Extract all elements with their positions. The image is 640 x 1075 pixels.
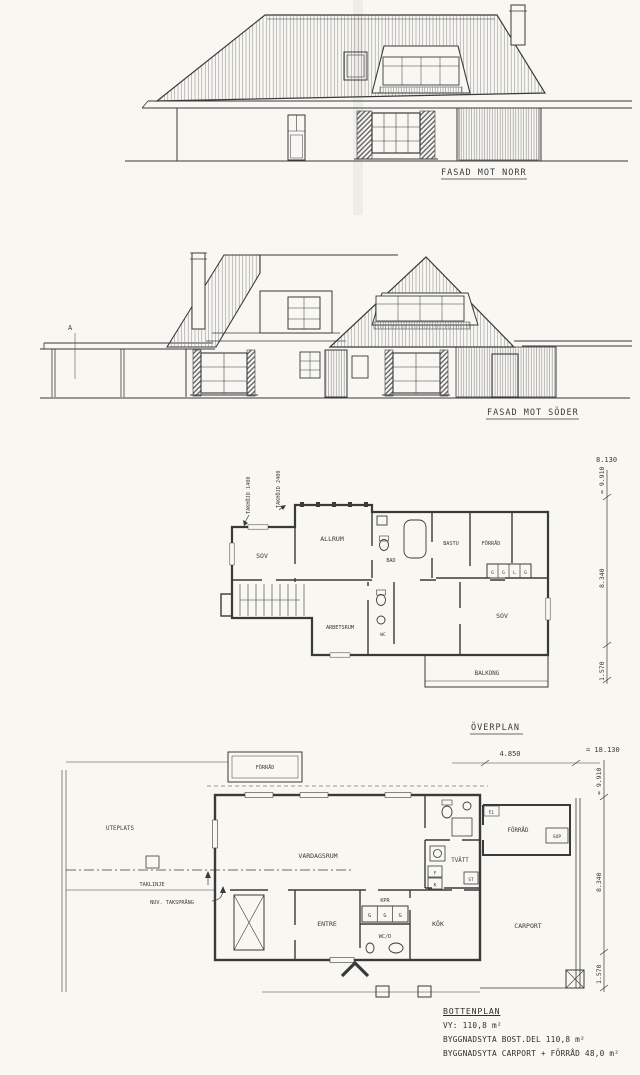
room-label-entre: ENTRE [317,920,337,928]
entrance-arrow-icon [342,963,368,976]
window-small-2 [352,356,368,378]
label-sop: SOP [553,834,562,840]
room-label-uteplats: UTEPLATS [106,826,134,832]
north-house [125,5,632,161]
basin-icon [389,943,403,953]
south-caption: FASAD MOT SÖDER [487,407,579,418]
slat-wall [459,108,539,160]
closet-letter: G [524,570,527,576]
closet-letter: G [502,570,505,576]
toilet-icon [377,595,386,606]
wcd-fixtures [366,943,403,953]
entry-door [325,350,347,397]
room-label-carport: CARPORT [514,922,541,930]
center-window [354,111,438,159]
label-st: ST [468,877,474,883]
carport-structure [40,343,215,397]
room-label-vardagsrum: VARDAGSRUM [298,852,337,860]
stair-box [234,895,264,950]
footings [376,986,431,997]
note-line-byggnadsyta-bostad: BYGGNADSYTA BOST.DEL 110,8 m² [443,1035,640,1044]
dim-height-total: = 9.910 [598,467,606,494]
annotation-taklinje: TAKLINJE [140,882,165,888]
upper-wall [260,291,332,333]
bath-fixtures [377,516,426,558]
closet-letter: G [491,570,494,576]
chimney [190,253,207,329]
window-openings [230,525,550,657]
label-kyl: K [434,883,437,889]
chimney-plan [221,594,232,616]
closet-letter: G [383,913,386,919]
closet-letter: G [399,913,402,919]
wc-fixtures [377,590,386,624]
bath-fixtures [442,800,472,836]
dim-top [452,760,600,766]
toilet-icon [442,806,452,818]
room-label-bastu: BASTU [443,541,459,547]
takhojd-1400-label: TAKHÖJD 1400 [245,477,252,514]
room-label-balkong: BALKONG [475,671,500,677]
overplan-drawing: TAKHÖJD 1400 TAKHÖJD 2400 SOV ALLRUM BAD… [0,448,640,740]
overplan-caption: ÖVERPLAN [471,722,520,733]
scan-fold-artifact [353,0,363,215]
dim-height-lower: 1.570 [595,964,603,984]
closet-letter: L [513,570,516,576]
drawing-sheet: FASAD MOT NORR [0,0,640,1075]
room-label-tvatt: TVÄTT [451,857,469,864]
closet-letter: G [368,913,371,919]
note-line-byggnadsyta-carport: BYGGNADSYTA CARPORT + FÖRRÅD 48,0 m² [443,1049,640,1058]
north-elevation-drawing: FASAD MOT NORR [0,0,640,226]
interior-walls [232,512,548,655]
room-label-forrad: FÖRRÅD [482,540,501,547]
patio-post [146,856,159,868]
section-marker: A [68,324,73,332]
room-label-allrum: ALLRUM [320,535,344,543]
takhojd-2400-label: TAKHÖJD 2400 [275,471,282,508]
room-label-wcd: WC/D [379,934,392,940]
north-roof [157,15,545,101]
entry-door-window [288,115,305,160]
notes-block: BOTTENPLAN VY: 110,8 m² BYGGNADSYTA BOST… [443,1006,640,1058]
exterior-wall [215,795,480,960]
window-small-1 [300,352,320,378]
label-frys: F [434,871,437,877]
dim-height-main: 8.340 [598,568,606,588]
washer-icon [430,846,445,861]
sink-icon [377,516,387,525]
south-house [40,253,632,398]
dormer [372,46,470,93]
dim-width-total: 8.130 [596,456,617,464]
bathtub-icon [404,520,426,558]
room-label-arbetsrum: ARBETSRUM [326,625,354,631]
interior-walls [230,795,480,960]
room-label-forrad-top: FÖRRÅD [256,764,275,771]
annotation-taksprang: NUV. TAKSPRÅNG [150,899,194,906]
dim-width-total: = 18.130 [586,746,620,754]
dim-height-lower: 1.570 [598,661,606,681]
gable-dormer [372,293,478,329]
shower-icon [452,818,472,836]
chimney [509,5,527,45]
dim-top-width: 4.850 [499,750,520,758]
room-label-sov-left: SOV [256,552,268,560]
north-caption: FASAD MOT NORR [441,168,527,178]
bottenplan-walls [62,752,608,997]
window-left [190,350,258,396]
room-label-sov-right: SOV [496,612,508,620]
laundry-fixtures [430,846,445,861]
room-label-bad: BAD [386,558,395,564]
carport-structure [480,798,584,988]
south-elevation-drawing: A FASAD MOT SÖDER [0,229,640,429]
label-el: EL [489,810,495,816]
room-label-wc: WC [380,632,386,638]
sink-icon [377,616,385,624]
notes-title: BOTTENPLAN [443,1006,640,1016]
room-label-forrad-right: FÖRRÅD [508,827,529,834]
dim-height-main: 8.340 [595,872,603,892]
toilet-icon [366,943,374,953]
sink-icon [463,802,471,810]
window-right [382,350,450,396]
room-label-kpr: KPR [380,898,390,904]
note-line-vy: VY: 110,8 m² [443,1021,640,1030]
dim-height-total: = 9.910 [595,768,603,795]
room-label-kok: KÖK [432,919,444,928]
